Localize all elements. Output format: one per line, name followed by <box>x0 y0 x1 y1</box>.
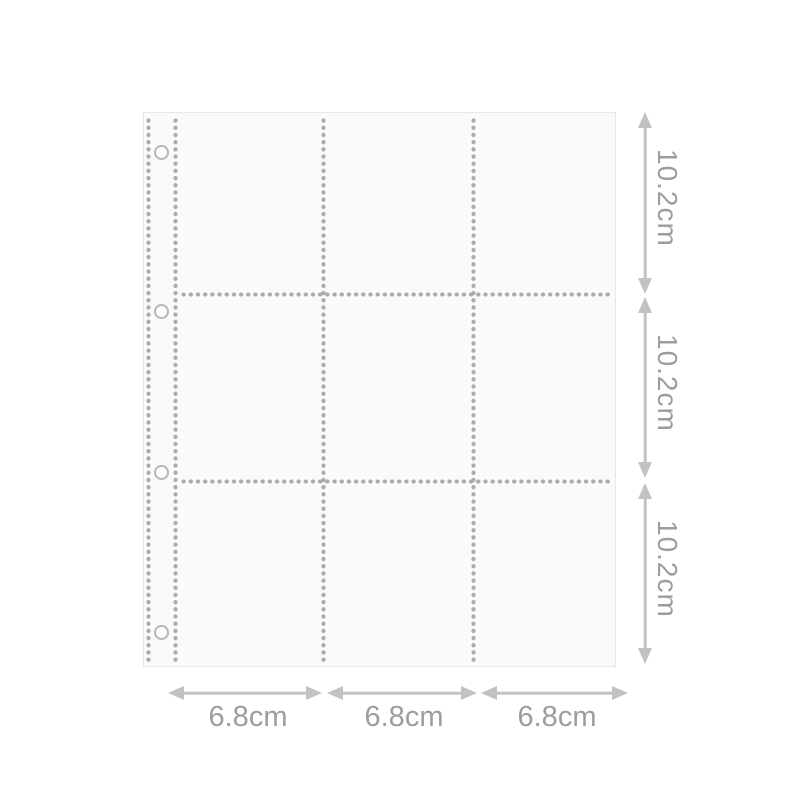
col-dimension-arrow-1 <box>168 684 322 702</box>
col-dimension-label: 6.8cm <box>339 701 469 734</box>
stitch-line-col-divider-2 <box>471 117 476 663</box>
stitch-line-binding-strip <box>173 117 178 663</box>
arrow-line <box>644 310 647 465</box>
arrow-head-down-icon <box>638 278 652 294</box>
pocket-page <box>143 112 616 667</box>
binder-hole <box>154 625 169 640</box>
arrow-line <box>340 692 464 695</box>
col-dimension-arrow-3 <box>481 684 628 702</box>
arrow-head-down-icon <box>638 648 652 664</box>
col-dimension-arrow-2 <box>327 684 477 702</box>
row-dimension-label: 10.2cm <box>651 520 683 618</box>
binder-hole <box>154 145 169 160</box>
arrow-head-right-icon <box>461 686 477 700</box>
arrow-head-down-icon <box>638 462 652 478</box>
arrow-line <box>181 692 309 695</box>
col-dimension-label: 6.8cm <box>183 701 313 734</box>
stitch-line-left-edge <box>146 117 151 663</box>
arrow-line <box>644 125 647 281</box>
row-dimension-label: 10.2cm <box>651 149 683 247</box>
binder-hole <box>154 304 169 319</box>
arrow-head-right-icon <box>612 686 628 700</box>
arrow-line <box>644 496 647 651</box>
binder-hole <box>154 465 169 480</box>
stitch-line-row-divider-1 <box>180 292 612 297</box>
stitch-line-col-divider-1 <box>321 117 326 663</box>
stitch-line-row-divider-2 <box>180 479 612 484</box>
product-dimension-diagram: 10.2cm 10.2cm 10.2cm 6.8cm 6.8cm 6.8cm <box>0 0 800 800</box>
col-dimension-label: 6.8cm <box>492 701 622 734</box>
row-dimension-label: 10.2cm <box>651 334 683 432</box>
arrow-head-right-icon <box>306 686 322 700</box>
arrow-line <box>494 692 615 695</box>
